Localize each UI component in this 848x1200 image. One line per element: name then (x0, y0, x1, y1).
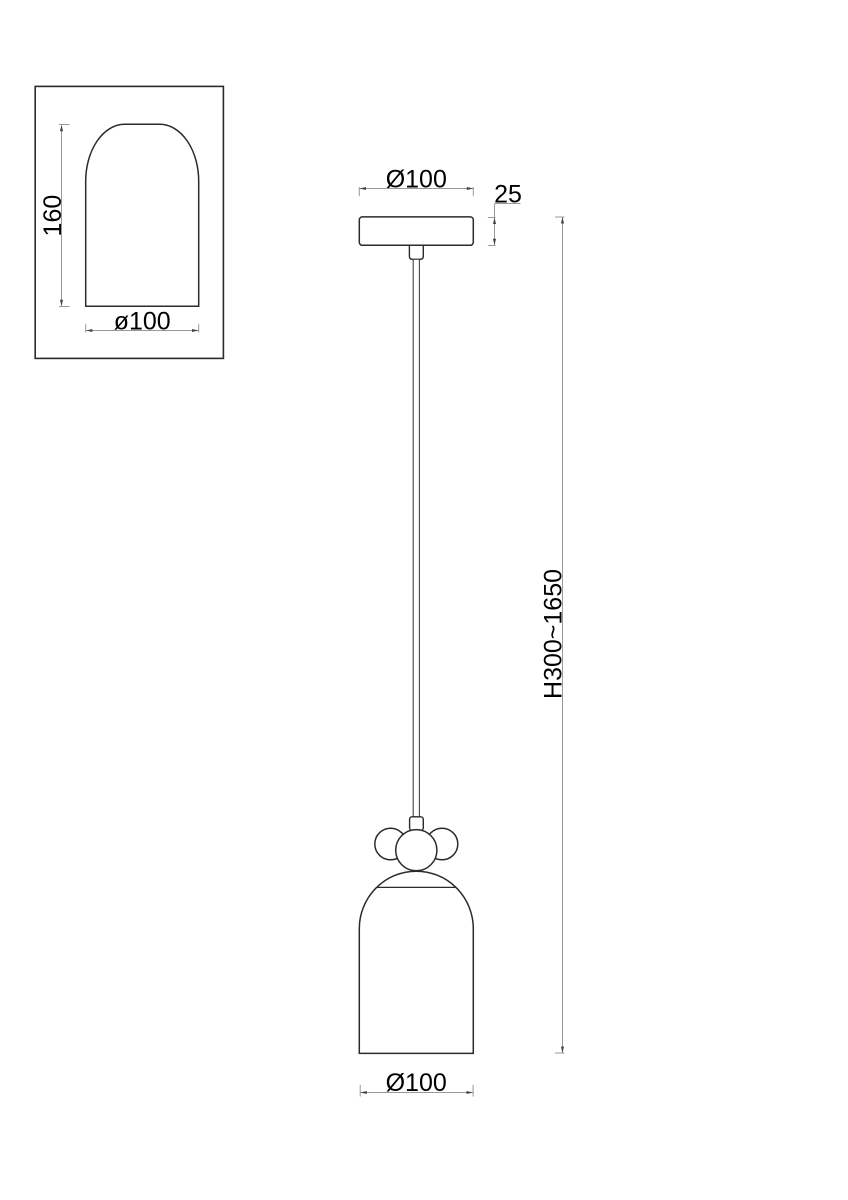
svg-text:H300~1650: H300~1650 (540, 569, 568, 699)
svg-text:Ø100: Ø100 (386, 165, 447, 193)
svg-text:160: 160 (39, 195, 67, 237)
svg-text:25: 25 (494, 181, 522, 209)
svg-text:Ø100: Ø100 (386, 1069, 447, 1097)
svg-text:ø100: ø100 (114, 307, 171, 335)
